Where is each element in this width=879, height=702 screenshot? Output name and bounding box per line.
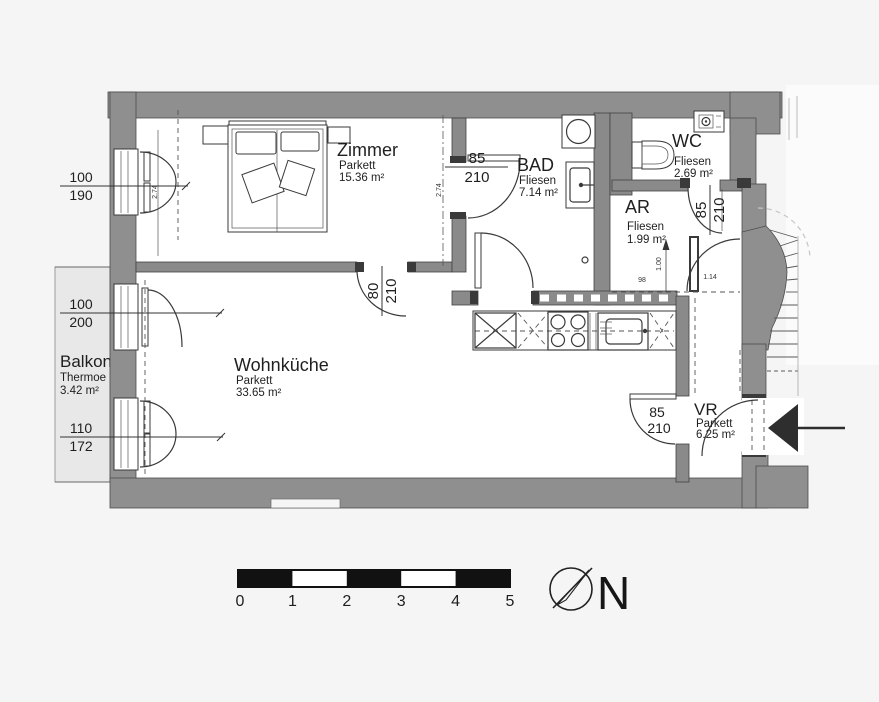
dim-wall-left: 2.74 (152, 185, 159, 199)
svg-text:AR: AR (625, 197, 650, 217)
kitchen-counter (473, 311, 676, 350)
svg-text:100: 100 (69, 296, 93, 312)
svg-text:Fliesen: Fliesen (519, 175, 556, 187)
cistern-icon (694, 111, 724, 132)
svg-text:210: 210 (464, 169, 489, 186)
svg-text:200: 200 (69, 314, 93, 330)
svg-text:85: 85 (693, 202, 710, 219)
svg-text:6.25 m²: 6.25 m² (696, 429, 735, 441)
balkon-name: Balkon (60, 352, 112, 371)
svg-text:Fliesen: Fliesen (627, 221, 664, 233)
svg-text:Parkett: Parkett (339, 160, 376, 172)
washing-machine-icon (562, 115, 595, 148)
scale-tick: 2 (342, 593, 351, 610)
balkon-area: 3.42 m² (60, 385, 99, 397)
svg-text:33.65 m²: 33.65 m² (236, 387, 282, 399)
svg-text:WC: WC (672, 131, 702, 151)
svg-text:210: 210 (383, 278, 400, 303)
svg-text:80: 80 (365, 283, 382, 300)
svg-text:2.69 m²: 2.69 m² (674, 168, 713, 180)
svg-text:85: 85 (469, 150, 486, 167)
svg-text:2.74: 2.74 (152, 185, 159, 199)
room-label-bad: BAD Fliesen 7.14 m² (517, 155, 558, 199)
svg-text:Parkett: Parkett (236, 375, 273, 387)
dim-ar-b: 98 (638, 277, 646, 284)
dim-ar-c: 1.14 (703, 274, 717, 281)
scale-tick: 1 (288, 593, 297, 610)
scale-tick: 0 (236, 593, 245, 610)
svg-text:172: 172 (69, 438, 93, 454)
page-white-area (786, 85, 879, 365)
toilet-icon (632, 141, 674, 169)
svg-text:1.00: 1.00 (656, 257, 663, 271)
svg-text:1.99 m²: 1.99 m² (627, 234, 666, 246)
balkon-floor: Thermoe (60, 372, 106, 384)
svg-text:BAD: BAD (517, 155, 554, 175)
svg-text:Fliesen: Fliesen (674, 156, 711, 168)
bottom-wall-notch (271, 499, 340, 508)
bathroom-fixtures (562, 115, 595, 208)
svg-text:2.74: 2.74 (436, 183, 443, 197)
svg-text:VR: VR (694, 400, 718, 419)
svg-text:15.36 m²: 15.36 m² (339, 172, 385, 184)
scale-tick: 5 (506, 593, 515, 610)
floor-plan: Balkon Thermoe 3.42 m² (0, 0, 879, 702)
washbasin-icon (566, 162, 594, 208)
svg-text:110: 110 (70, 420, 93, 436)
svg-text:Zimmer: Zimmer (337, 140, 398, 160)
svg-text:190: 190 (69, 187, 93, 203)
north-label: N (597, 567, 630, 619)
svg-text:85: 85 (649, 404, 665, 420)
floor-plan-page: Balkon Thermoe 3.42 m² (0, 0, 879, 702)
scale-tick: 4 (451, 593, 460, 610)
dim-wall-right: 2.74 (436, 183, 443, 197)
svg-text:100: 100 (69, 169, 93, 185)
svg-text:210: 210 (647, 420, 671, 436)
scale-tick: 3 (397, 593, 406, 610)
dim-ar-a: 1.00 (656, 257, 663, 271)
svg-text:7.14 m²: 7.14 m² (519, 187, 558, 199)
svg-text:Wohnküche: Wohnküche (234, 355, 329, 375)
svg-text:210: 210 (711, 197, 728, 222)
